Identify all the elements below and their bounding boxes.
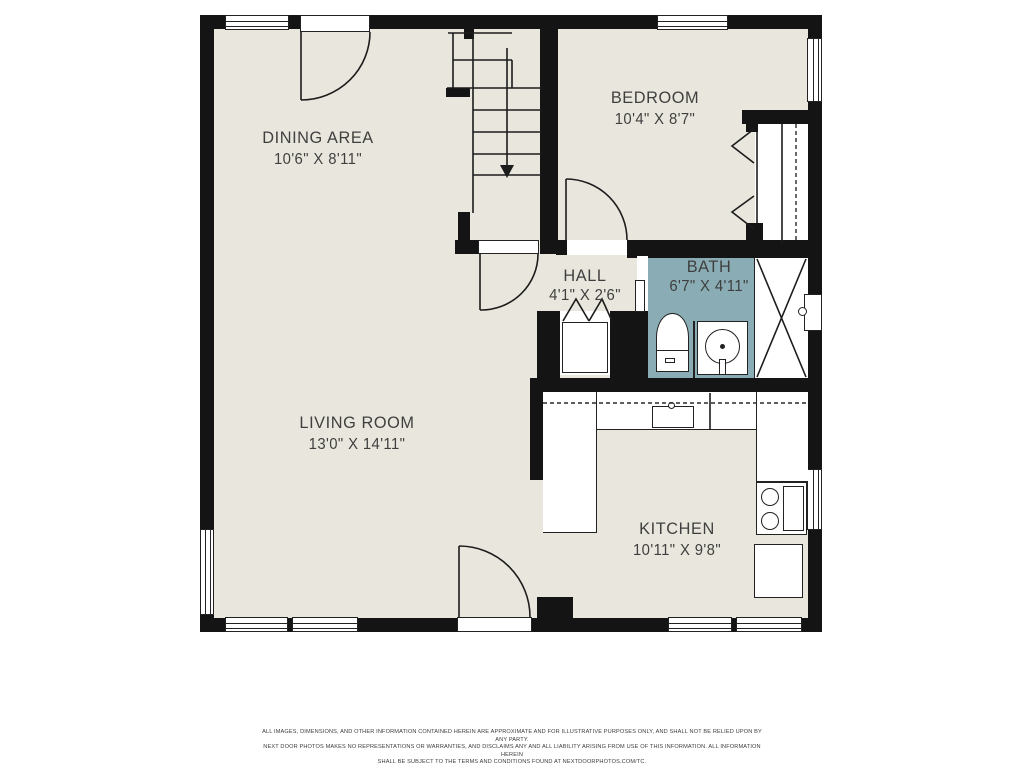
window-kitchen-bottom-a xyxy=(668,617,732,632)
floorplan-canvas: DINING AREA 10'6" X 8'11" BEDROOM 10'4" … xyxy=(0,0,1024,768)
wall-kitchen-west-pier xyxy=(537,597,573,618)
window-kitchen-right xyxy=(807,469,822,530)
vanity-drain-dot xyxy=(720,344,725,349)
room-name: KITCHEN xyxy=(633,519,721,539)
stove-oven-panel xyxy=(783,486,804,531)
stove-burner-icon xyxy=(761,512,779,530)
room-name: BEDROOM xyxy=(611,88,699,108)
disclaimer-text: ALL IMAGES, DIMENSIONS, AND OTHER INFORM… xyxy=(262,729,762,767)
wall-bedroom-closet-top-jamb xyxy=(746,110,758,132)
room-label-hall: HALL 4'1" X 2'6" xyxy=(549,266,621,305)
window-dining xyxy=(225,15,289,30)
room-name: BATH xyxy=(669,257,748,277)
hall-closet-box xyxy=(562,322,608,373)
kitchen-counter-right xyxy=(756,392,808,482)
room-label-bedroom: BEDROOM 10'4" X 8'7" xyxy=(611,88,699,129)
wall-stairwell-bottom-stub xyxy=(458,212,470,242)
stove-burner-icon xyxy=(761,488,779,506)
disclaimer-line: ALL IMAGES, DIMENSIONS, AND OTHER INFORM… xyxy=(262,729,762,744)
wall-kitchen-west xyxy=(530,378,543,480)
wall-hall-south xyxy=(455,240,480,254)
room-dims: 10'11" X 9'8" xyxy=(633,542,721,560)
window-living-left xyxy=(200,529,214,615)
door-opening-dining xyxy=(300,15,370,32)
room-dims: 13'0" X 14'11" xyxy=(299,436,414,454)
toilet-handle xyxy=(665,358,675,363)
wall-bedroom-door-jamb xyxy=(556,240,567,255)
window-living-bottom-a xyxy=(225,617,288,632)
kitchen-sink xyxy=(652,406,694,428)
bath-door-panel xyxy=(635,280,645,312)
bath-partition-line xyxy=(693,321,695,378)
refrigerator xyxy=(754,544,803,598)
room-label-kitchen: KITCHEN 10'11" X 9'8" xyxy=(633,519,721,560)
room-label-living: LIVING ROOM 13'0" X 14'11" xyxy=(299,413,414,454)
shower-knob-icon xyxy=(798,307,807,316)
wall-stairwell-mid-stub xyxy=(446,88,470,97)
shower-stall xyxy=(754,254,808,380)
door-opening-bedroom xyxy=(567,240,627,255)
wall-bedroom-bath xyxy=(627,240,822,258)
room-label-bath: BATH 6'7" X 4'11" xyxy=(669,257,748,296)
vanity-faucet xyxy=(719,359,726,375)
window-bedroom-top xyxy=(657,15,728,30)
door-opening-front xyxy=(457,617,532,632)
wall-bedroom-closet-bottom-jamb xyxy=(746,223,763,242)
door-opening-hall xyxy=(478,240,539,254)
disclaimer-line: SHALL BE SUBJECT TO THE TERMS AND CONDIT… xyxy=(262,759,762,767)
kitchen-counter-left xyxy=(543,392,597,533)
room-dims: 10'6" X 8'11" xyxy=(262,151,374,169)
window-living-bottom-b xyxy=(292,617,358,632)
kitchen-faucet-icon xyxy=(668,402,675,409)
room-name: LIVING ROOM xyxy=(299,413,414,433)
wall-stairwell-right xyxy=(540,29,558,254)
wall-stairwell-top-stub xyxy=(464,29,474,39)
disclaimer-line: NEXT DOOR PHOTOS MAKES NO REPRESENTATION… xyxy=(262,744,762,759)
window-bedroom-right xyxy=(807,38,822,102)
room-name: HALL xyxy=(549,266,621,286)
room-label-dining: DINING AREA 10'6" X 8'11" xyxy=(262,128,374,169)
room-dims: 10'4" X 8'7" xyxy=(611,111,699,129)
room-name: DINING AREA xyxy=(262,128,374,148)
window-kitchen-bottom-b xyxy=(736,617,802,632)
room-dims: 6'7" X 4'11" xyxy=(669,278,748,296)
room-dims: 4'1" X 2'6" xyxy=(549,287,621,305)
wall-kitchen-north xyxy=(537,378,822,392)
